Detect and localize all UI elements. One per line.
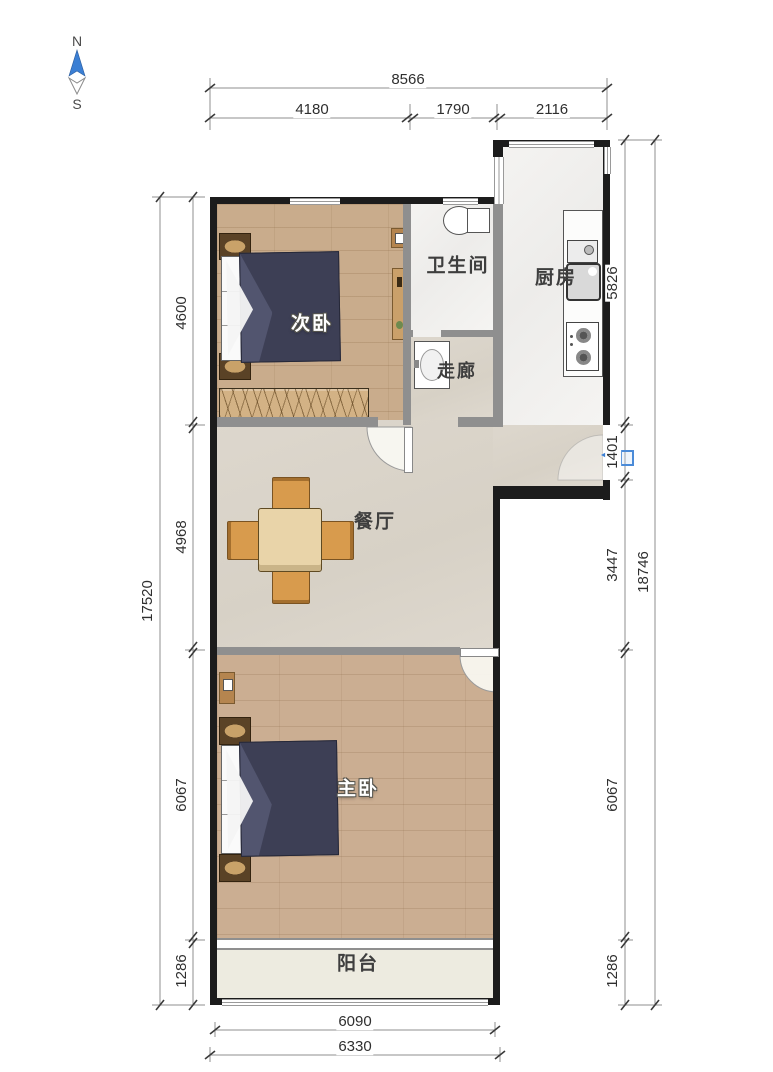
dim-left-seg4: 1286	[174, 952, 190, 989]
stove	[566, 322, 599, 371]
dining-chair	[227, 521, 262, 560]
dim-right-seg3: 3447	[605, 546, 621, 583]
dim-top-seg3: 2116	[534, 102, 570, 118]
dim-right-seg4: 6067	[605, 776, 621, 813]
label-secondary-bedroom: 次卧	[291, 309, 333, 336]
wall-bedroom-dining	[217, 417, 378, 427]
kitchen-left-window	[494, 157, 504, 204]
bed-duvet	[239, 740, 339, 857]
wall-bathroom-kitchen	[493, 204, 503, 425]
dim-right-seg1: 5826	[605, 264, 621, 301]
label-corridor: 走廊	[437, 357, 477, 383]
window	[290, 198, 340, 205]
wall-dining-master	[217, 647, 460, 655]
faucet-icon	[414, 360, 419, 368]
wall-corridor-dining-stub	[458, 417, 503, 427]
wall-bedroom-bathroom	[403, 204, 411, 425]
dim-right-seg2: 1401	[605, 433, 621, 470]
label-dining-room: 餐厅	[354, 507, 396, 534]
window	[443, 198, 478, 205]
wall-right-exterior	[493, 486, 500, 1005]
compass-needle-icon	[67, 49, 87, 95]
kitchen-window	[509, 141, 594, 148]
toilet-tank	[467, 208, 490, 233]
bed-duvet	[239, 251, 341, 363]
wall-left-exterior	[210, 197, 217, 1005]
dining-chair	[272, 567, 310, 604]
kitchen-wall-post	[493, 147, 503, 157]
label-kitchen: 厨房	[535, 263, 577, 290]
master-bedroom-door-leaf	[460, 648, 499, 657]
nightstand	[219, 854, 251, 882]
dining-chair	[272, 477, 310, 512]
kitchen-side-window	[604, 147, 611, 174]
entry-floor	[493, 425, 603, 486]
floor-plan: N S	[0, 0, 773, 1072]
dim-left-seg3: 6067	[174, 776, 190, 813]
plant-icon	[396, 321, 403, 329]
dim-left-seg1: 4600	[174, 294, 190, 331]
wall-switch	[219, 672, 235, 704]
dim-top-seg1: 4180	[293, 102, 330, 118]
entrance-door-icon	[620, 450, 634, 466]
faucet-icon	[584, 245, 594, 255]
dim-right-seg5: 1286	[605, 952, 621, 989]
burner-icon	[576, 328, 591, 343]
sink-drainer	[567, 240, 598, 263]
balcony-window	[222, 999, 488, 1006]
dim-top-seg2: 1790	[434, 102, 471, 118]
dim-bottom-outer: 6330	[336, 1039, 373, 1055]
corridor-door-leaf	[404, 427, 413, 473]
dim-right-total: 18746	[636, 549, 652, 595]
compass-north-label: N	[72, 33, 82, 49]
kitchen-wall-bottom	[493, 486, 610, 499]
dim-bottom-inner: 6090	[336, 1014, 373, 1030]
burner-icon	[576, 350, 591, 365]
bathroom-door-opening	[413, 330, 441, 337]
label-master-bedroom: 主卧	[337, 774, 379, 801]
dim-top-total: 8566	[389, 72, 426, 88]
dining-chair	[318, 521, 354, 560]
dim-left-seg2: 4968	[174, 518, 190, 555]
compass-south-label: S	[72, 96, 81, 112]
label-balcony: 阳台	[337, 949, 379, 976]
label-bathroom: 卫生间	[426, 251, 489, 278]
wardrobe	[219, 388, 369, 419]
dim-left-total: 17520	[140, 578, 156, 624]
dining-table	[258, 508, 322, 572]
